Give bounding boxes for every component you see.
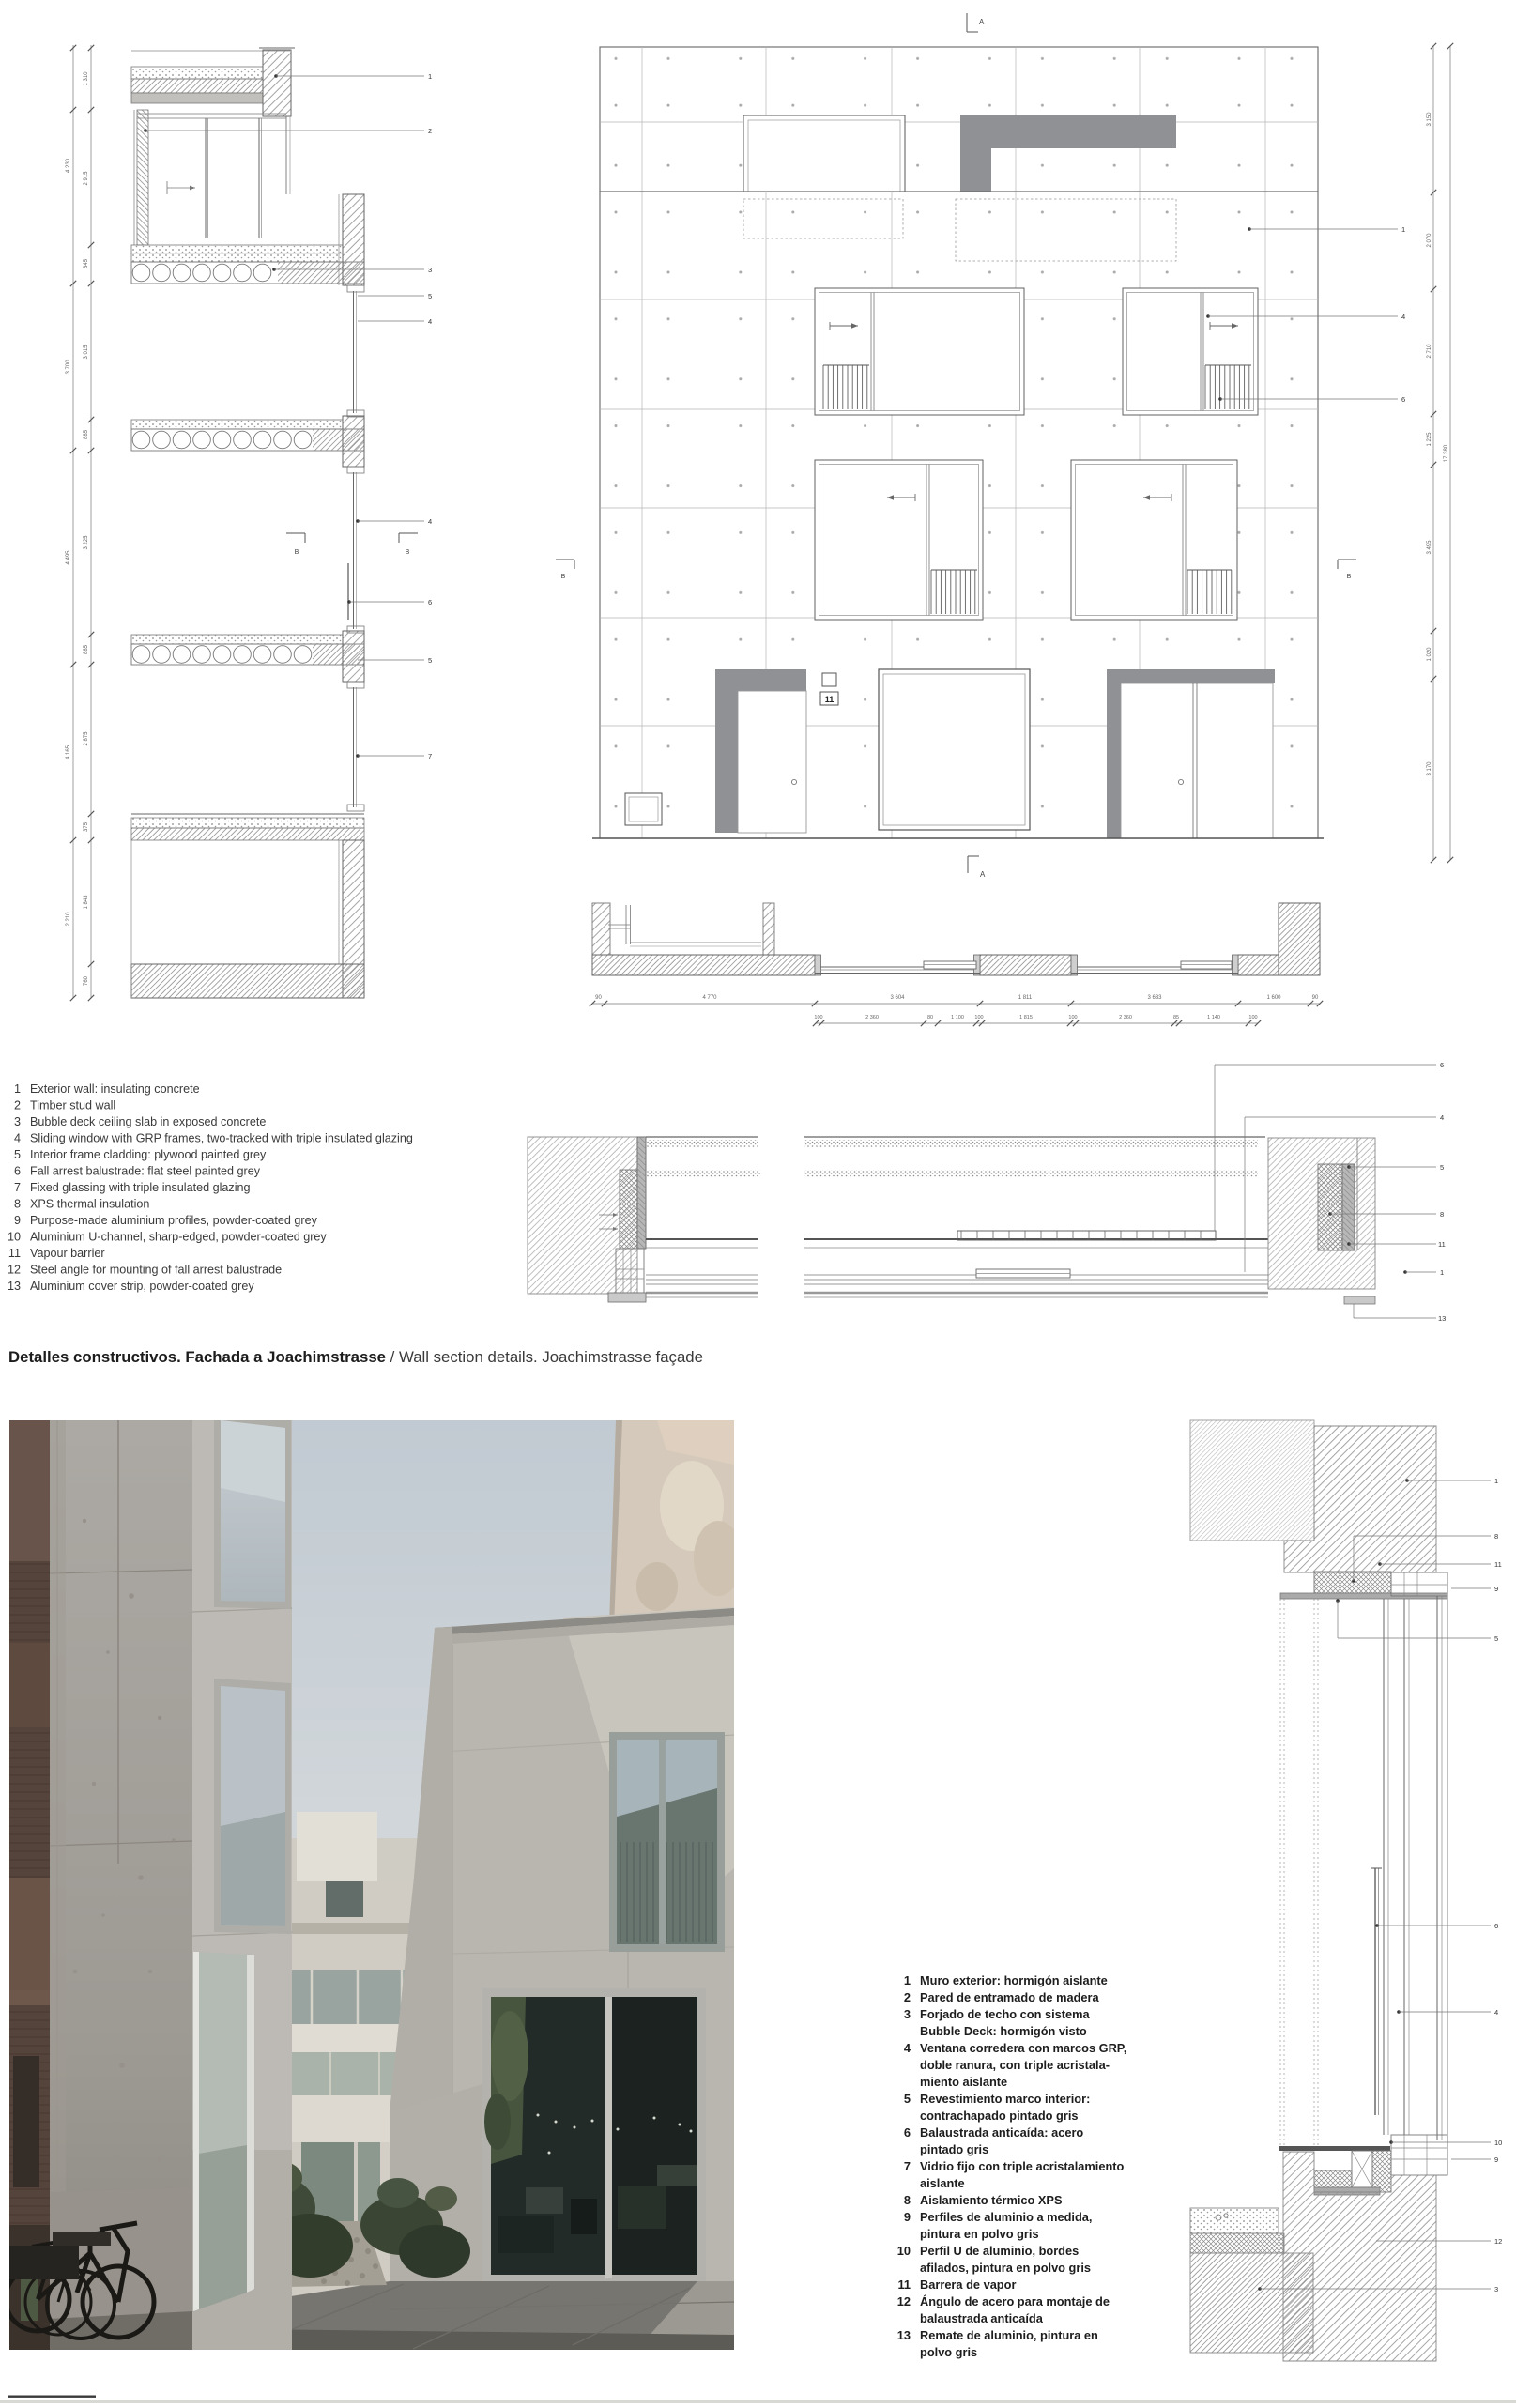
svg-text:12: 12 [8, 1264, 21, 1277]
svg-text:12: 12 [1494, 2237, 1502, 2246]
svg-text:1 811: 1 811 [1018, 995, 1033, 1001]
svg-text:85: 85 [1173, 1015, 1179, 1020]
svg-text:B: B [1347, 574, 1352, 580]
svg-text:13: 13 [1438, 1314, 1446, 1323]
svg-text:3: 3 [14, 1115, 21, 1128]
svg-text:2 915: 2 915 [84, 171, 89, 186]
svg-text:aislante: aislante [920, 2176, 965, 2190]
svg-text:5: 5 [428, 292, 432, 300]
svg-text:A: A [980, 870, 986, 879]
svg-text:pintado gris: pintado gris [920, 2142, 988, 2156]
svg-text:Remate de aluminio, pintura en: Remate de aluminio, pintura en [920, 2328, 1098, 2342]
svg-text:3 170: 3 170 [1427, 761, 1432, 776]
svg-text:B: B [295, 549, 299, 556]
svg-text:5: 5 [1494, 1634, 1498, 1643]
svg-text:B: B [561, 574, 566, 580]
svg-text:845: 845 [84, 258, 89, 268]
svg-text:9: 9 [1494, 1585, 1498, 1593]
svg-text:100: 100 [1068, 1015, 1077, 1020]
svg-text:Bubble Deck: hormigón visto: Bubble Deck: hormigón visto [920, 2024, 1087, 2038]
svg-text:100: 100 [974, 1015, 983, 1020]
svg-text:Bubble deck ceiling slab in ex: Bubble deck ceiling slab in exposed conc… [30, 1115, 266, 1128]
svg-text:contrachapado pintado gris: contrachapado pintado gris [920, 2109, 1079, 2123]
svg-text:10: 10 [8, 1231, 21, 1244]
svg-text:11: 11 [825, 695, 835, 704]
svg-text:3: 3 [1494, 2285, 1498, 2293]
svg-text:9: 9 [14, 1214, 21, 1227]
svg-text:XPS thermal insulation: XPS thermal insulation [30, 1198, 149, 1211]
svg-text:pintura en polvo gris: pintura en polvo gris [920, 2227, 1039, 2241]
svg-text:balaustrada anticaída: balaustrada anticaída [920, 2311, 1044, 2325]
svg-text:1: 1 [904, 1973, 911, 1987]
svg-text:Barrera de vapor: Barrera de vapor [920, 2278, 1016, 2292]
svg-text:6: 6 [1440, 1061, 1444, 1069]
svg-text:A: A [979, 18, 985, 26]
svg-text:Aislamiento térmico XPS: Aislamiento térmico XPS [920, 2193, 1063, 2207]
svg-text:2 875: 2 875 [84, 731, 89, 746]
svg-text:11: 11 [8, 1247, 21, 1260]
svg-text:6: 6 [904, 2125, 911, 2140]
svg-text:Exterior wall: insulating conc: Exterior wall: insulating concrete [30, 1082, 200, 1096]
svg-text:afilados, pintura en polvo gri: afilados, pintura en polvo gris [920, 2261, 1091, 2275]
svg-text:1 225: 1 225 [1427, 432, 1432, 447]
svg-text:4 230: 4 230 [66, 158, 71, 173]
svg-text:17 380: 17 380 [1444, 444, 1449, 462]
svg-text:Revestimiento marco interior:: Revestimiento marco interior: [920, 2092, 1090, 2106]
svg-text:Timber stud wall: Timber stud wall [30, 1099, 115, 1112]
svg-text:Pared de entramado de madera: Pared de entramado de madera [920, 1990, 1099, 2004]
svg-text:3 495: 3 495 [1427, 540, 1432, 555]
svg-text:3: 3 [904, 2007, 911, 2021]
svg-text:Vapour barrier: Vapour barrier [30, 1247, 105, 1260]
svg-text:9: 9 [904, 2210, 911, 2224]
svg-text:Ventana corredera con marcos G: Ventana corredera con marcos GRP, [920, 2041, 1126, 2055]
svg-text:11: 11 [1494, 1560, 1502, 1569]
svg-text:6: 6 [1494, 1922, 1498, 1930]
svg-text:Perfiles de aluminio a medida,: Perfiles de aluminio a medida, [920, 2210, 1092, 2224]
svg-text:3 604: 3 604 [890, 995, 905, 1001]
svg-text:2 070: 2 070 [1427, 233, 1432, 248]
svg-text:3 225: 3 225 [84, 535, 89, 550]
svg-text:2 360: 2 360 [865, 1015, 879, 1020]
svg-text:4 770: 4 770 [702, 995, 717, 1001]
svg-text:5: 5 [904, 2092, 911, 2106]
svg-text:Muro exterior: hormigón aislan: Muro exterior: hormigón aislante [920, 1973, 1108, 1987]
svg-text:10: 10 [1494, 2139, 1502, 2147]
svg-text:Forjado de techo con sistema: Forjado de techo con sistema [920, 2007, 1091, 2021]
svg-text:9: 9 [1494, 2155, 1498, 2164]
svg-text:2: 2 [904, 1990, 911, 2004]
svg-text:4: 4 [1494, 2008, 1498, 2017]
svg-text:7: 7 [14, 1181, 21, 1194]
svg-text:885: 885 [84, 644, 89, 654]
svg-text:4: 4 [428, 317, 432, 326]
svg-text:1 020: 1 020 [1427, 647, 1432, 662]
svg-text:6: 6 [14, 1165, 21, 1178]
svg-text:760: 760 [84, 975, 89, 986]
svg-text:1: 1 [1440, 1268, 1444, 1277]
svg-text:Fixed glassing with triple ins: Fixed glassing with triple insulated gla… [30, 1181, 251, 1194]
svg-text:Aluminium cover strip, powder-: Aluminium cover strip, powder-coated gre… [30, 1280, 254, 1293]
svg-text:doble ranura, con triple acris: doble ranura, con triple acristala- [920, 2058, 1110, 2072]
svg-text:Fall arrest balustrade: flat s: Fall arrest balustrade: flat steel paint… [30, 1165, 261, 1178]
svg-text:1 310: 1 310 [84, 71, 89, 86]
svg-text:Ángulo de acero para montaje d: Ángulo de acero para montaje de [920, 2294, 1110, 2308]
svg-text:1 815: 1 815 [1019, 1015, 1033, 1020]
svg-text:1: 1 [1494, 1477, 1498, 1485]
svg-text:1 100: 1 100 [951, 1015, 964, 1020]
svg-text:Perfil U de aluminio, bordes: Perfil U de aluminio, bordes [920, 2244, 1079, 2258]
svg-text:Purpose-made aluminium profile: Purpose-made aluminium profiles, powder-… [30, 1214, 318, 1227]
svg-text:Steel angle for mounting of fa: Steel angle for mounting of fall arrest … [30, 1264, 282, 1277]
svg-text:miento aislante: miento aislante [920, 2075, 1007, 2089]
svg-text:90: 90 [1312, 995, 1319, 1001]
svg-text:11: 11 [897, 2278, 911, 2292]
svg-text:2 710: 2 710 [1427, 344, 1432, 359]
svg-text:4: 4 [428, 517, 432, 526]
svg-text:Interior frame cladding: plywo: Interior frame cladding: plywood painted… [30, 1148, 267, 1161]
svg-text:Vidrio fijo con triple acrista: Vidrio fijo con triple acristalamiento [920, 2159, 1125, 2173]
svg-text:3 015: 3 015 [84, 345, 89, 360]
svg-text:3 700: 3 700 [66, 360, 71, 375]
svg-text:Aluminium U-channel, sharp-edg: Aluminium U-channel, sharp-edged, powder… [30, 1231, 327, 1244]
svg-text:Sliding window with GRP frames: Sliding window with GRP frames, two-trac… [30, 1132, 413, 1145]
svg-text:Balaustrada anticaída: acero: Balaustrada anticaída: acero [920, 2125, 1083, 2140]
svg-text:7: 7 [904, 2159, 911, 2173]
svg-text:1 140: 1 140 [1207, 1015, 1220, 1020]
svg-text:2 360: 2 360 [1119, 1015, 1132, 1020]
svg-text:8: 8 [1440, 1210, 1444, 1219]
svg-text:1: 1 [428, 72, 432, 81]
svg-text:375: 375 [84, 821, 89, 832]
svg-text:6: 6 [428, 598, 432, 606]
svg-text:11: 11 [1438, 1240, 1446, 1249]
svg-text:3: 3 [428, 266, 432, 274]
svg-text:4: 4 [1401, 313, 1405, 321]
svg-text:8: 8 [904, 2193, 911, 2207]
svg-text:1: 1 [14, 1082, 21, 1096]
svg-text:8: 8 [1494, 1532, 1498, 1541]
svg-text:5: 5 [428, 656, 432, 665]
svg-text:90: 90 [595, 995, 602, 1001]
svg-text:100: 100 [814, 1015, 822, 1020]
svg-text:1: 1 [1401, 225, 1405, 234]
svg-text:4: 4 [14, 1132, 21, 1145]
svg-text:12: 12 [897, 2294, 911, 2308]
svg-text:3 633: 3 633 [1147, 995, 1162, 1001]
svg-text:8: 8 [14, 1198, 21, 1211]
svg-text:2 210: 2 210 [66, 912, 71, 927]
svg-text:13: 13 [8, 1280, 21, 1293]
svg-text:B: B [406, 549, 410, 556]
svg-text:4 495: 4 495 [66, 550, 71, 565]
svg-text:4: 4 [904, 2041, 911, 2055]
svg-text:6: 6 [1401, 395, 1405, 404]
svg-text:5: 5 [14, 1148, 21, 1161]
svg-text:100: 100 [1248, 1015, 1257, 1020]
svg-text:1 843: 1 843 [84, 895, 89, 910]
svg-text:2: 2 [428, 127, 432, 135]
svg-text:4: 4 [1440, 1113, 1444, 1122]
svg-text:80: 80 [927, 1015, 933, 1020]
svg-text:polvo gris: polvo gris [920, 2345, 977, 2359]
svg-text:Detalles constructivos. Fachad: Detalles constructivos. Fachada a Joachi… [8, 1348, 703, 1366]
svg-text:3 150: 3 150 [1427, 112, 1432, 127]
svg-text:7: 7 [428, 752, 432, 760]
svg-text:885: 885 [84, 429, 89, 439]
svg-text:2: 2 [14, 1099, 21, 1112]
svg-text:5: 5 [1440, 1163, 1444, 1172]
svg-text:10: 10 [897, 2244, 911, 2258]
svg-text:4 165: 4 165 [66, 744, 71, 759]
svg-text:13: 13 [897, 2328, 911, 2342]
svg-text:1 600: 1 600 [1266, 995, 1281, 1001]
